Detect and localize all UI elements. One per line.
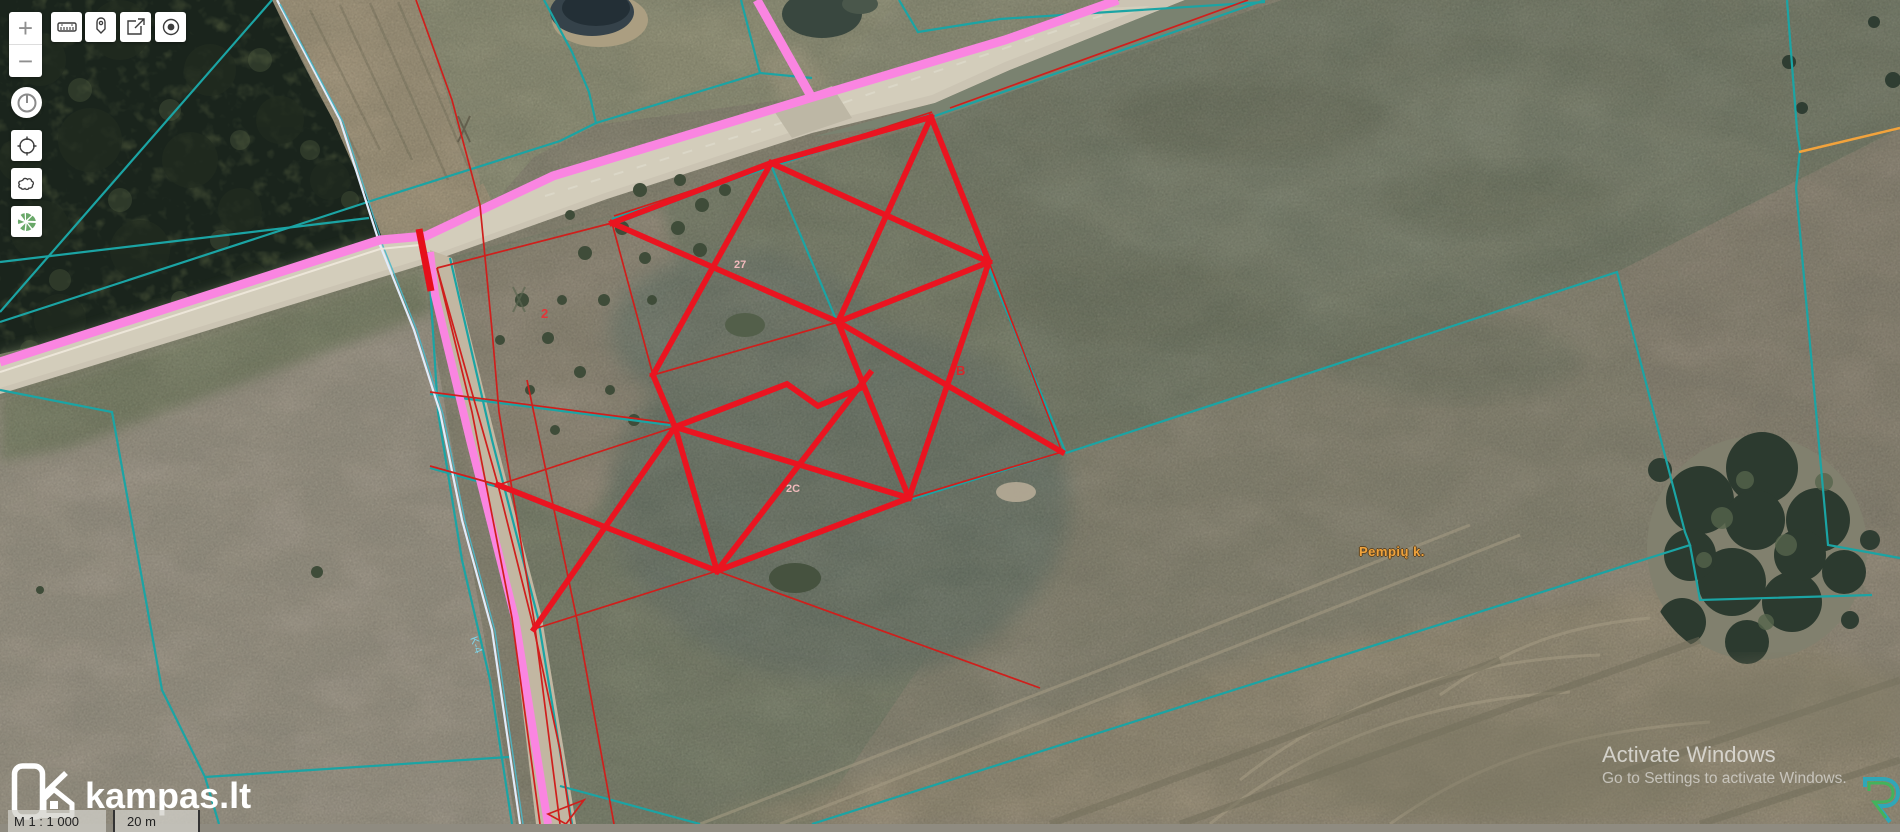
svg-text:2: 2	[541, 306, 548, 321]
svg-text:27: 27	[734, 259, 746, 271]
svg-text:2C: 2C	[786, 483, 800, 495]
svg-text:B: B	[956, 363, 965, 378]
